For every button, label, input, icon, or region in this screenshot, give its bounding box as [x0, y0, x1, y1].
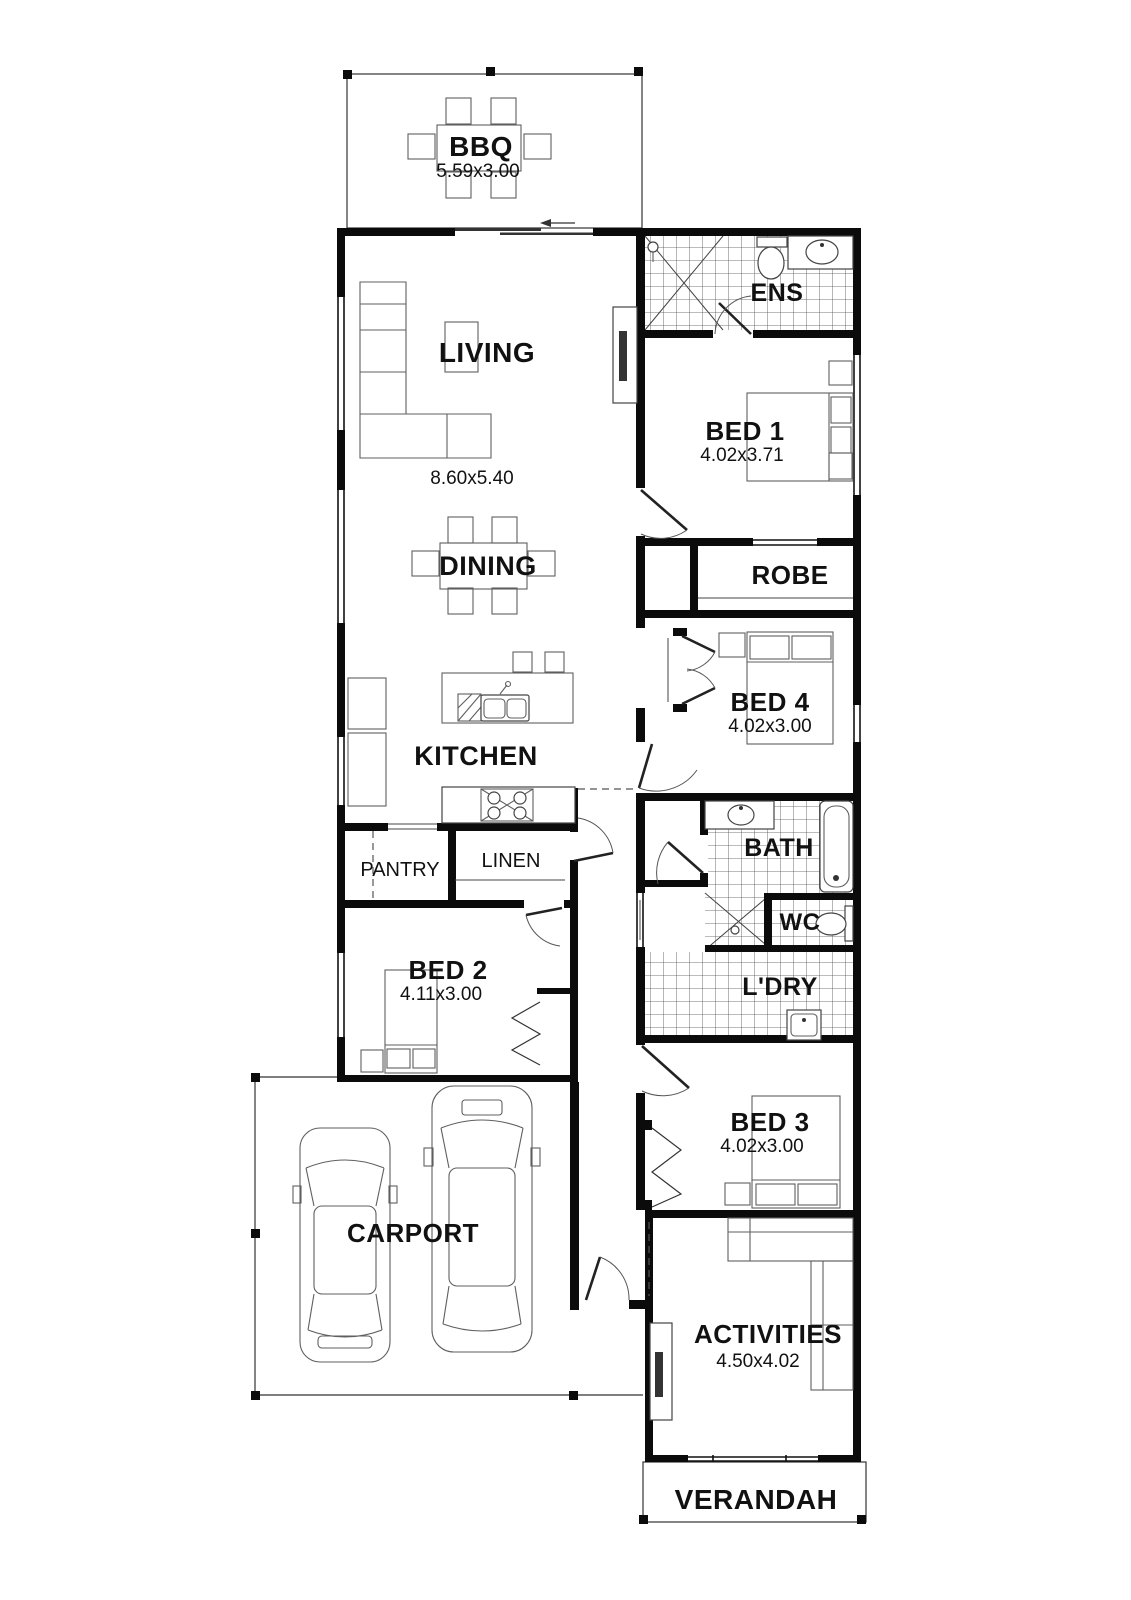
- room-label-laundry: L'DRY: [742, 973, 818, 1001]
- window-bed2-left: [338, 953, 344, 1037]
- room-label-bath: BATH: [744, 834, 814, 862]
- room-dims-bed1: 4.02x3.71: [700, 445, 783, 466]
- window-kitchen-left: [338, 737, 344, 805]
- toilet-cistern: [757, 237, 787, 247]
- door-bed3: [642, 1046, 689, 1096]
- cavity-slider-bath-hall: [637, 893, 643, 947]
- kitchen-sink: [481, 682, 529, 722]
- room-label-ens: ENS: [751, 279, 804, 307]
- door-bed4-right: [682, 669, 715, 704]
- tv-unit-activities: [650, 1323, 672, 1420]
- window-dining-left: [338, 490, 344, 623]
- stool: [545, 652, 564, 672]
- door-bed1: [641, 490, 687, 538]
- sunroof: [462, 1100, 502, 1115]
- room-label-bed2: BED 2: [408, 955, 487, 985]
- tv-unit-living: [613, 307, 637, 403]
- room-label-kitchen: KITCHEN: [414, 741, 538, 771]
- bench: [348, 678, 386, 729]
- living-furniture: [360, 282, 637, 458]
- window-verandah-bottom: [688, 1455, 818, 1462]
- door-bath: [657, 842, 703, 884]
- room-label-dining: DINING: [439, 551, 537, 581]
- room-dims-bbq: 5.59x3.00: [436, 161, 519, 182]
- room-label-bed3: BED 3: [730, 1107, 809, 1137]
- door-bath-lobby: [639, 744, 697, 791]
- room-label-activities: ACTIVITIES: [694, 1319, 842, 1349]
- toilet-bowl: [758, 247, 784, 279]
- room-label-bed4: BED 4: [730, 687, 809, 717]
- room-label-bbq: BBQ: [449, 131, 513, 162]
- door-hall-kitchen: [574, 818, 613, 861]
- shower-drain: [731, 926, 739, 934]
- entry-arrow: [540, 219, 575, 227]
- door-bed4-left: [682, 636, 715, 671]
- room-label-carport: CARPORT: [347, 1218, 479, 1248]
- room-label-robe: ROBE: [751, 560, 828, 590]
- fridge-space: [348, 733, 386, 806]
- shower-head: [648, 242, 658, 252]
- bed3-robe-bifold: [652, 1128, 681, 1207]
- stool: [513, 652, 532, 672]
- bed2-robe-bifold: [512, 1002, 540, 1065]
- window-living-left: [338, 297, 344, 430]
- room-label-linen: LINEN: [482, 850, 541, 872]
- room-label-wc: WC: [780, 909, 821, 936]
- sliding-door-entry: [455, 229, 593, 236]
- room-label-living: LIVING: [439, 337, 535, 368]
- room-label-bed1: BED 1: [705, 416, 784, 446]
- room-label-pantry: PANTRY: [360, 859, 439, 881]
- pantry-opening: [388, 824, 437, 829]
- room-dims-activities: 4.50x4.02: [716, 1351, 799, 1372]
- floor-plan-page: BBQ 5.59x3.00 LIVING 8.60x5.40 DINING KI…: [0, 0, 1131, 1600]
- room-dims-bed2: 4.11x3.00: [400, 984, 482, 1005]
- floor-plan: BBQ 5.59x3.00 LIVING 8.60x5.40 DINING KI…: [0, 0, 1131, 1600]
- window-bed4-right: [854, 705, 860, 742]
- cooktop-bench: [442, 787, 575, 823]
- door-bed2: [526, 908, 562, 946]
- window-robe: [753, 540, 817, 545]
- room-dims-living: 8.60x5.40: [430, 468, 513, 489]
- dishwasher: [458, 694, 481, 721]
- laundry-tub: [787, 1010, 821, 1040]
- door-vestibule-carport: [586, 1257, 629, 1300]
- room-label-verandah: VERANDAH: [675, 1484, 838, 1515]
- room-dims-bed3: 4.02x3.00: [720, 1136, 803, 1157]
- window-bed1-right: [854, 355, 860, 495]
- room-dims-bed4: 4.02x3.00: [728, 716, 811, 737]
- bathtub: [820, 801, 853, 892]
